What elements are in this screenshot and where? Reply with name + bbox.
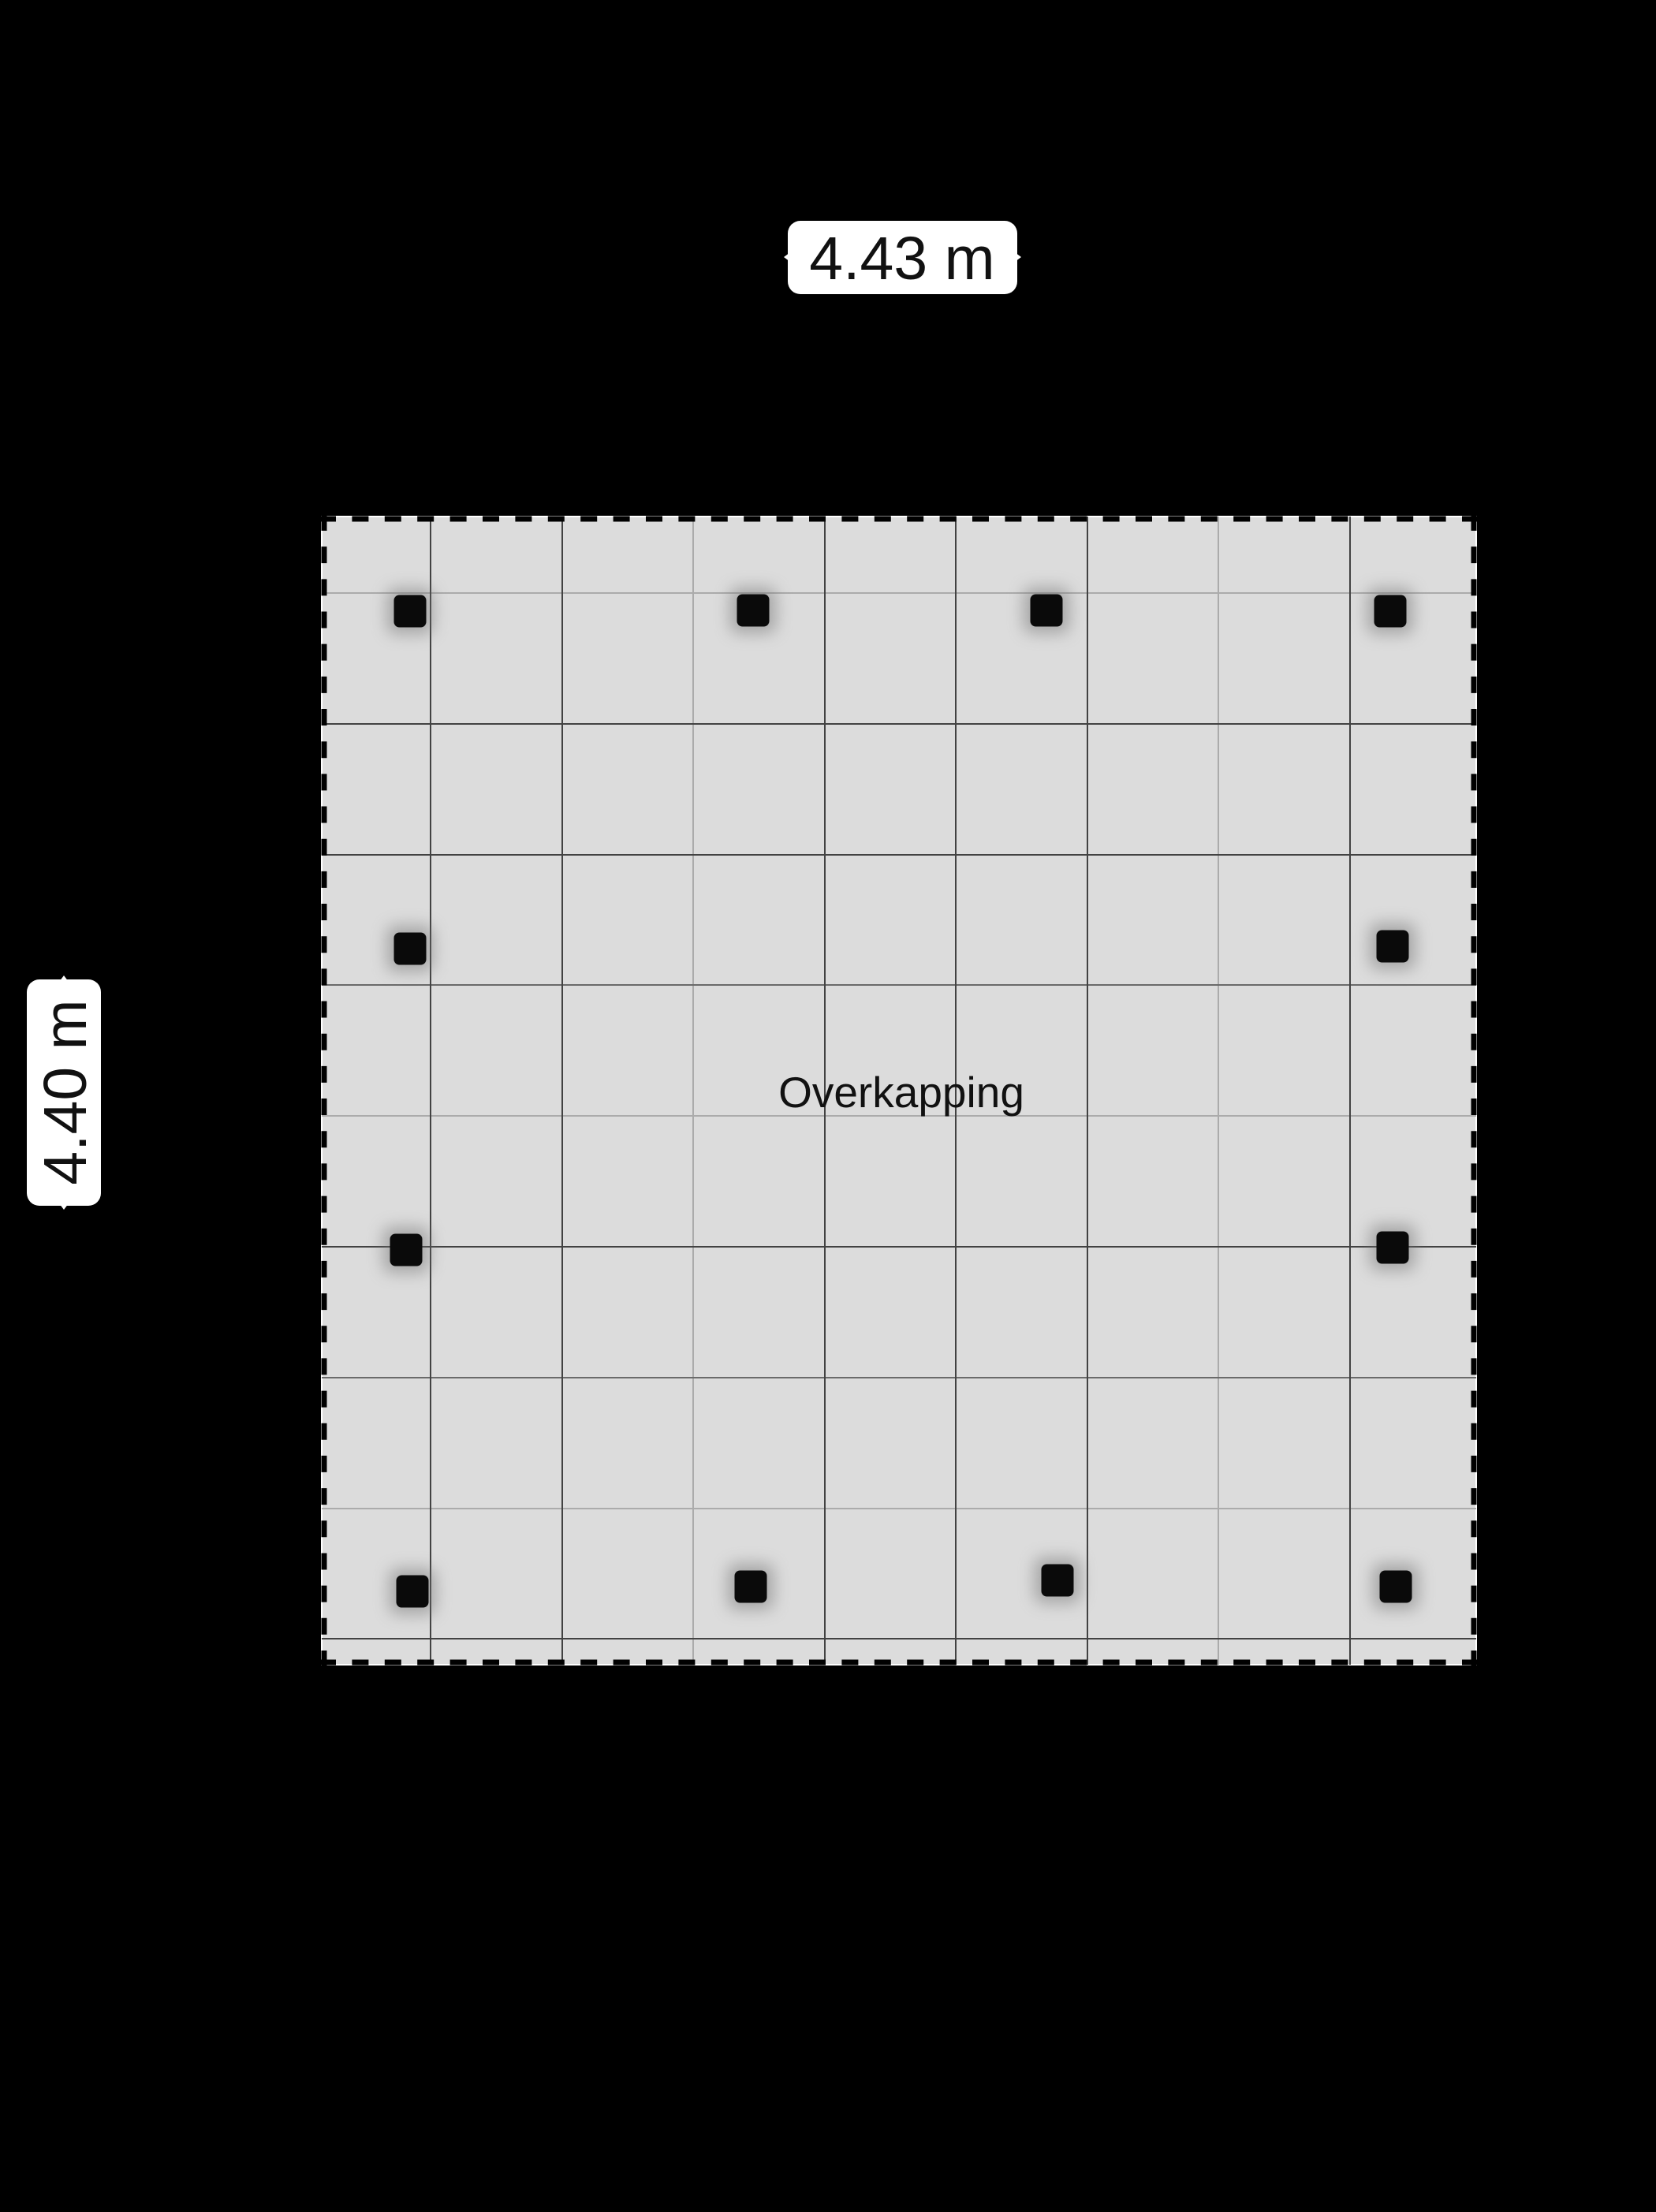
svg-text:4.40 m: 4.40 m [32, 999, 99, 1184]
svg-text:4.43 m: 4.43 m [809, 225, 994, 293]
svg-text:Overkapping: Overkapping [778, 1068, 1024, 1117]
